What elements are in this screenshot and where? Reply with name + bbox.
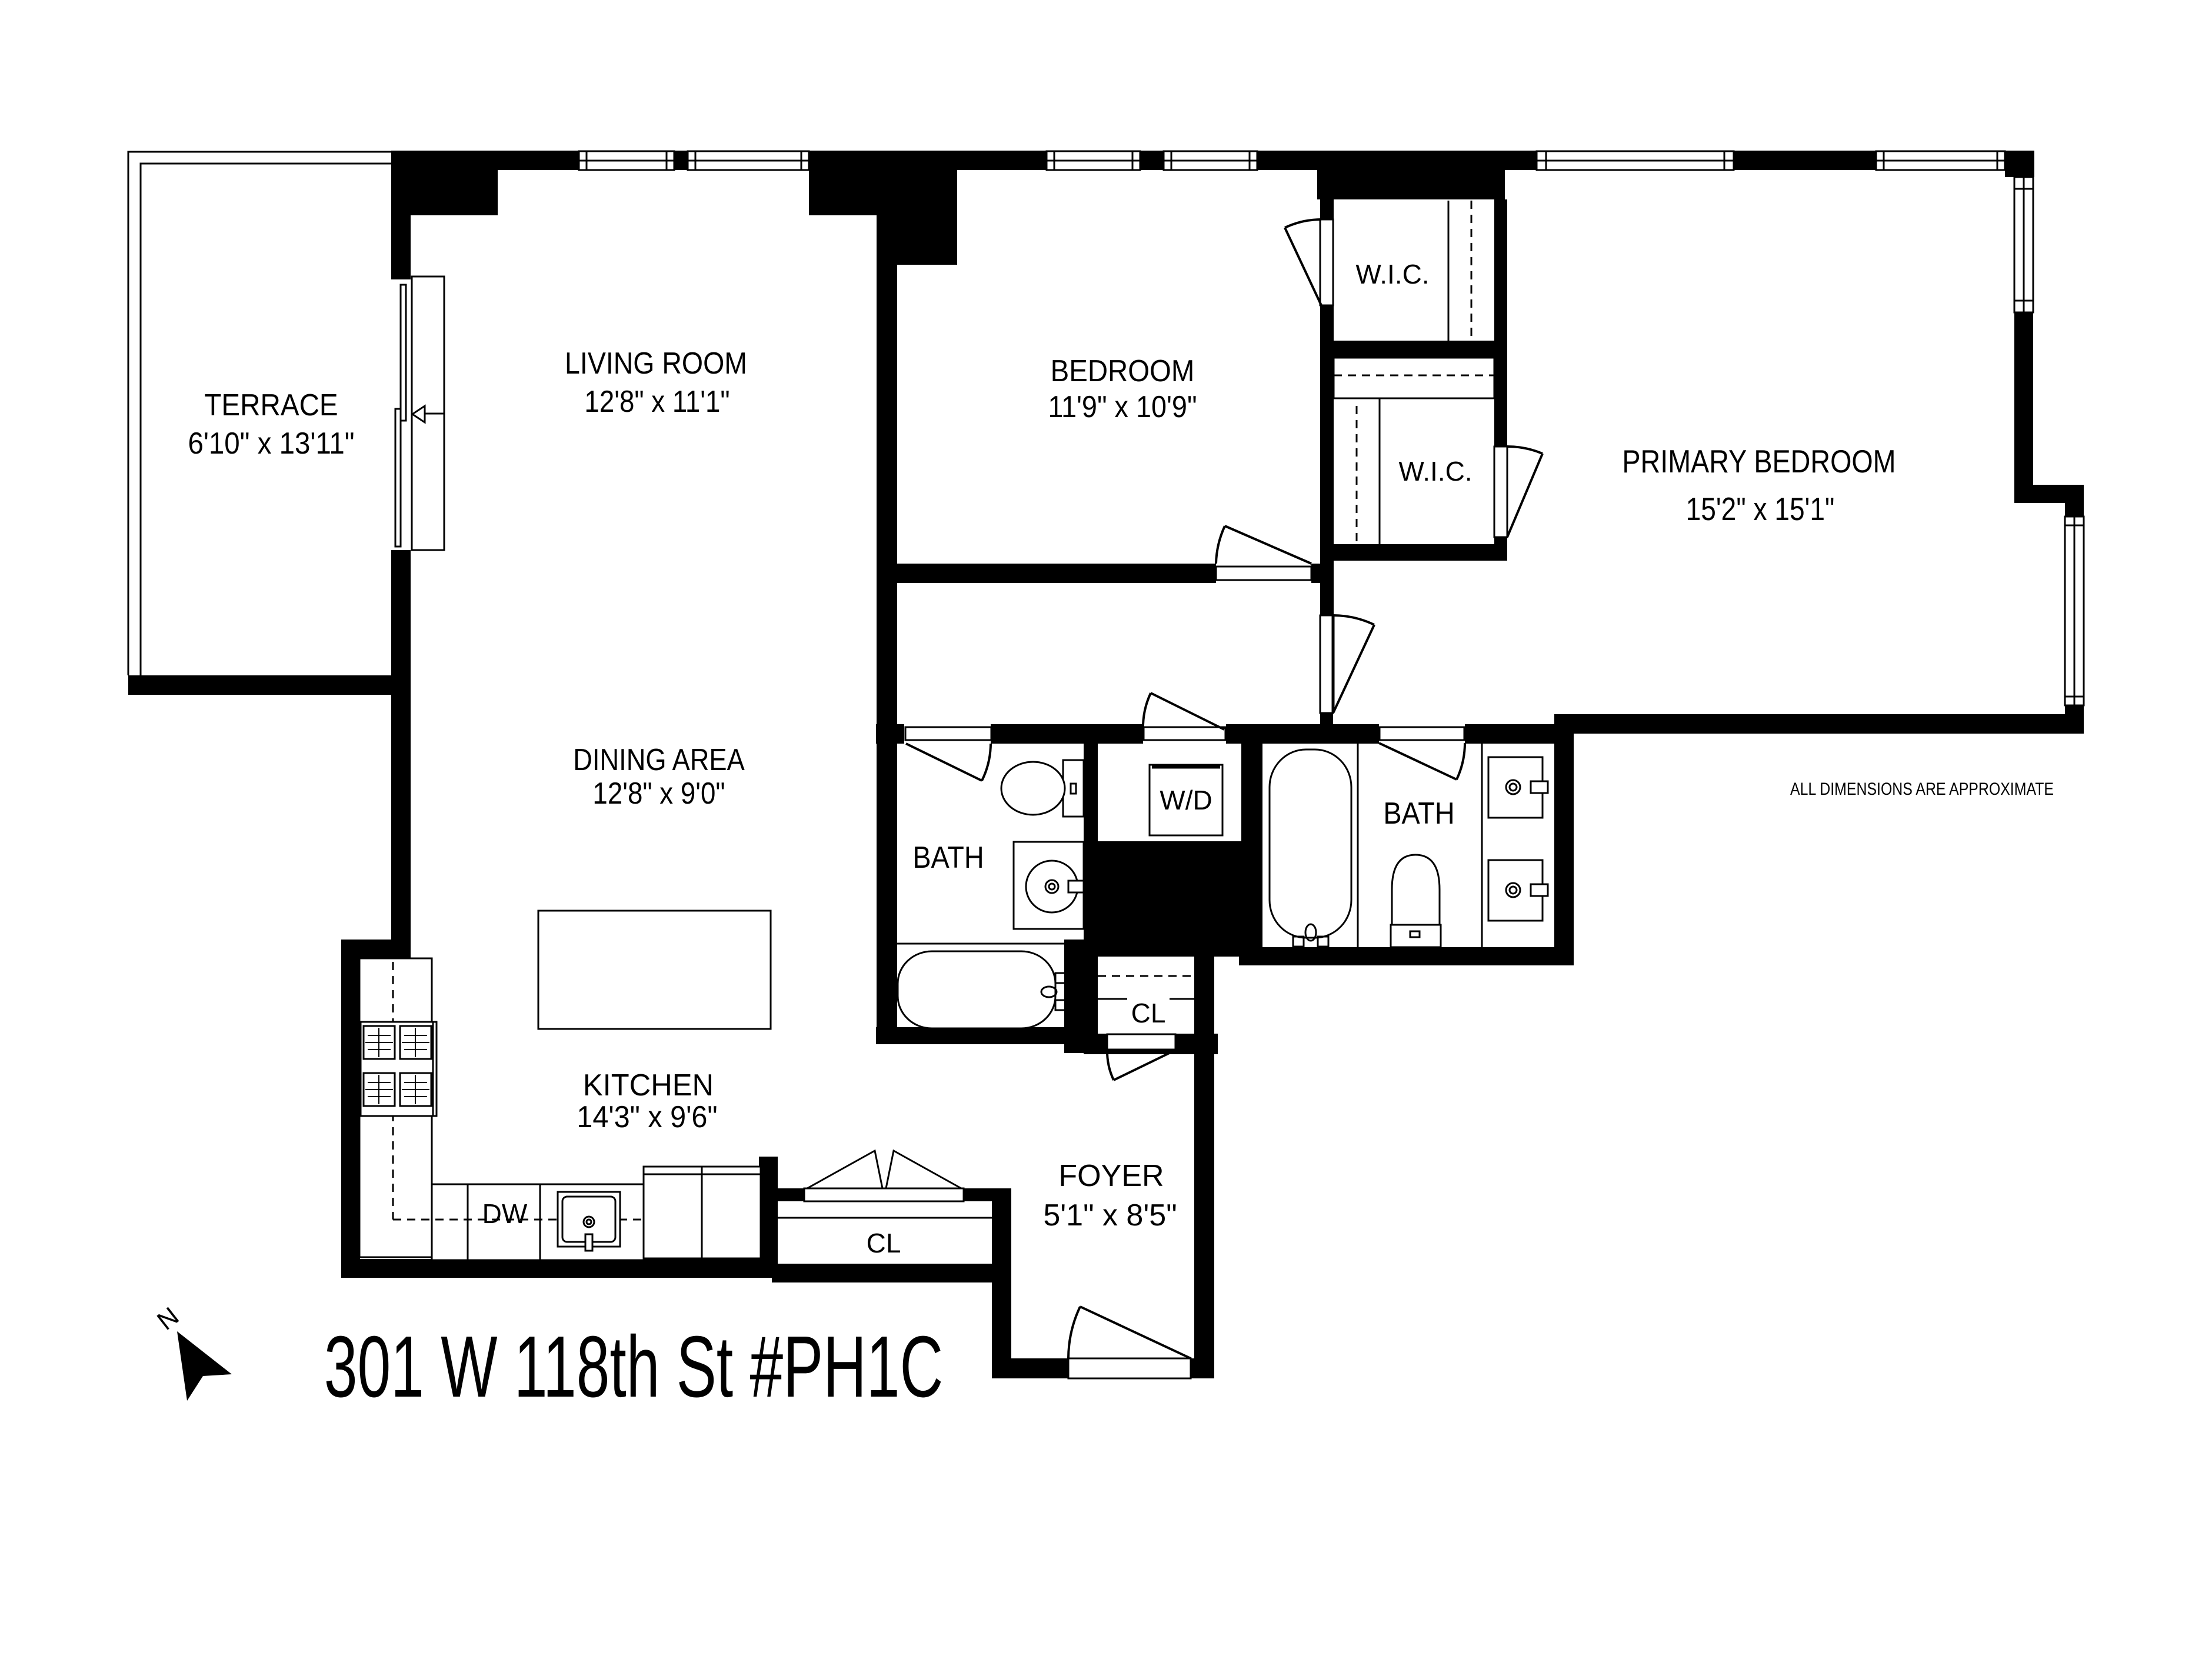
svg-text:15'2" x 15'1": 15'2" x 15'1" — [1686, 491, 1835, 527]
svg-text:301 W 118th St #PH1C: 301 W 118th St #PH1C — [324, 1318, 943, 1415]
svg-text:ALL DIMENSIONS ARE APPROXIMATE: ALL DIMENSIONS ARE APPROXIMATE — [1790, 779, 2054, 799]
svg-text:W.I.C.: W.I.C. — [1398, 456, 1472, 487]
svg-text:CL: CL — [867, 1228, 901, 1258]
svg-text:CL: CL — [1131, 998, 1166, 1028]
svg-text:14'3" x 9'6": 14'3" x 9'6" — [577, 1099, 717, 1134]
svg-text:5'1" x 8'5": 5'1" x 8'5" — [1043, 1198, 1177, 1232]
svg-text:DW: DW — [482, 1198, 528, 1229]
svg-text:12'8" x 9'0": 12'8" x 9'0" — [592, 777, 725, 810]
svg-text:BEDROOM: BEDROOM — [1051, 354, 1195, 388]
svg-text:KITCHEN: KITCHEN — [583, 1068, 714, 1102]
svg-text:TERRACE: TERRACE — [204, 388, 338, 422]
svg-text:6'10" x 13'11": 6'10" x 13'11" — [188, 426, 354, 460]
svg-text:BATH: BATH — [912, 841, 984, 875]
svg-text:11'9" x 10'9": 11'9" x 10'9" — [1048, 390, 1197, 424]
svg-text:W/D: W/D — [1160, 785, 1212, 815]
svg-text:FOYER: FOYER — [1058, 1159, 1164, 1193]
svg-text:DINING AREA: DINING AREA — [573, 743, 745, 777]
svg-text:LIVING ROOM: LIVING ROOM — [565, 347, 747, 381]
svg-text:12'8" x 11'1": 12'8" x 11'1" — [584, 385, 729, 418]
svg-text:PRIMARY BEDROOM: PRIMARY BEDROOM — [1622, 443, 1895, 479]
svg-text:W.I.C.: W.I.C. — [1355, 259, 1429, 289]
svg-text:BATH: BATH — [1383, 797, 1454, 831]
